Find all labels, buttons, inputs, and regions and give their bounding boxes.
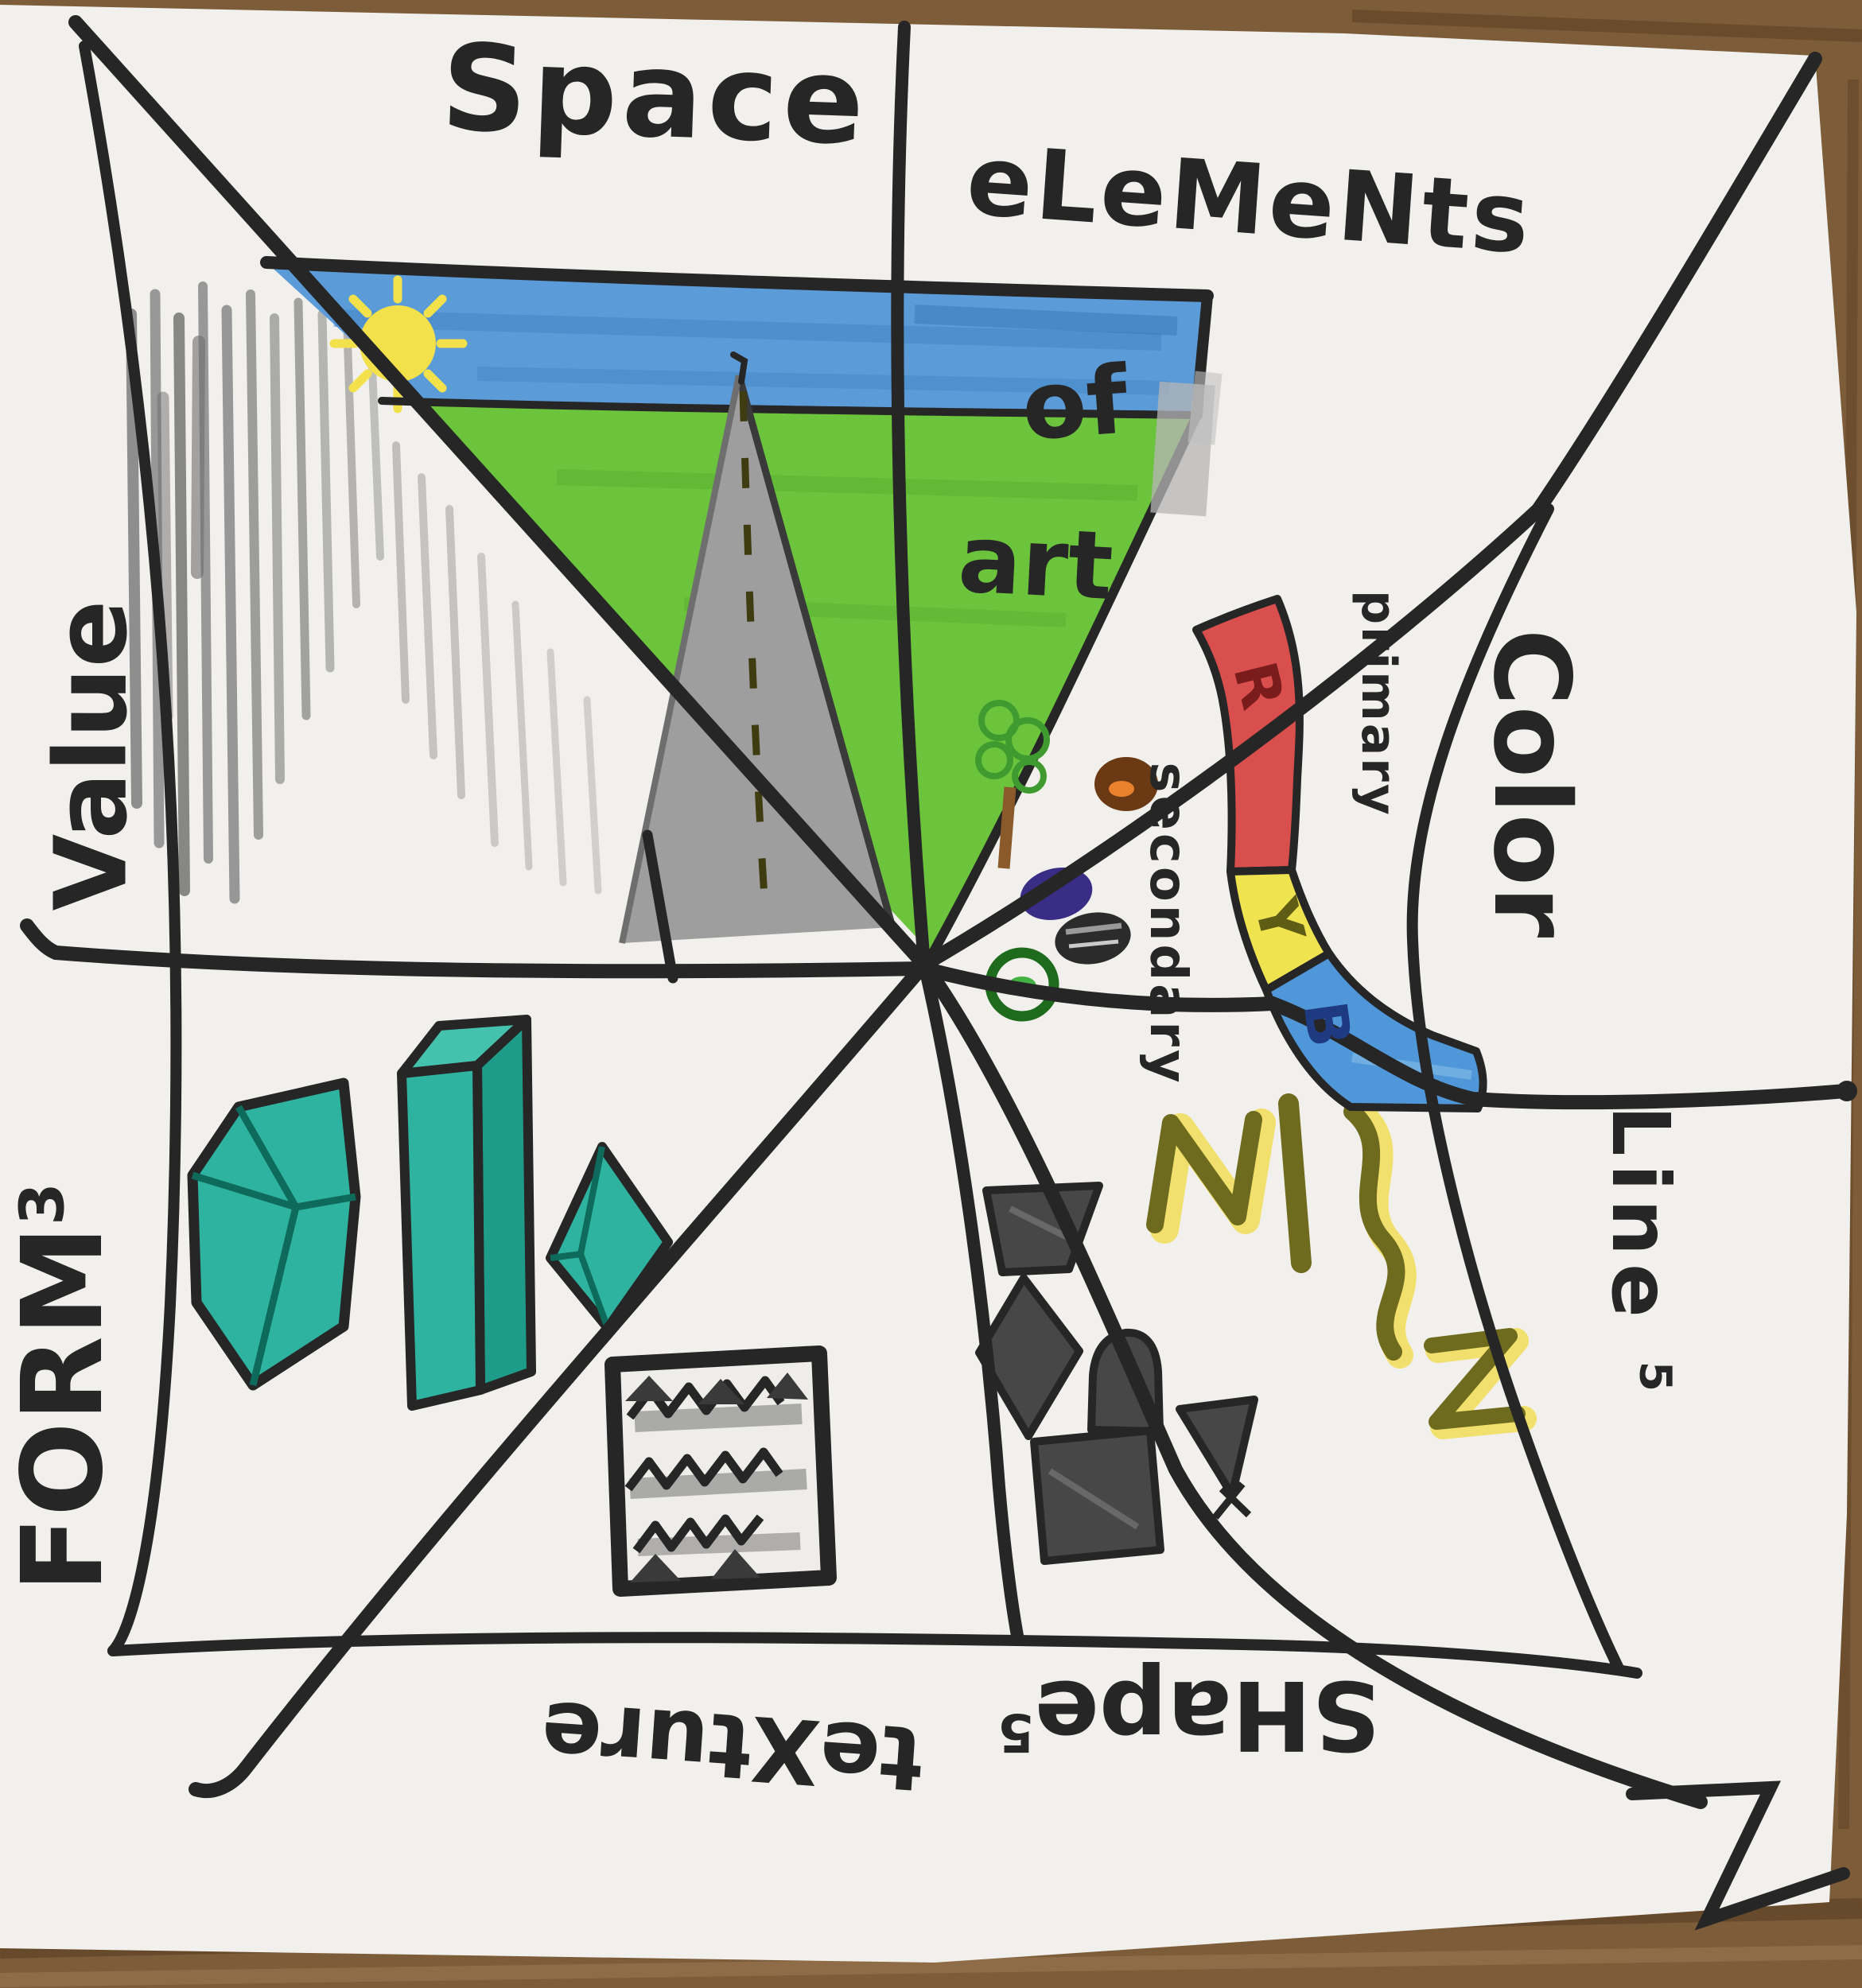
lines-label: Line 5 [1600,1105,1680,1400]
texture-label: teXture [538,1687,926,1803]
shapes-label: SHape5 [997,1666,1380,1761]
texture-square-drawing [612,1353,829,1589]
rainbow-letter-b: B [1294,998,1359,1050]
title-line2: of [1019,353,1130,454]
photo-of-folded-paper-artwork: Space eLeMeNts of art Value FORM3 Color … [0,0,1862,1988]
secondary-label: secondary [1142,762,1193,1085]
value-label: Value [42,600,142,911]
prism-side [477,1019,531,1390]
quad-shape [1034,1431,1160,1561]
title-line3: art [956,511,1115,613]
form-label: FORM3 [8,1182,119,1592]
space-label: Space [440,29,871,163]
artwork-canvas [0,0,1862,1988]
primary-label: primary [1355,590,1402,817]
olive-vertical-stroke [1289,1104,1301,1263]
prism-front [402,1066,480,1406]
color-label: Color [1479,629,1584,938]
